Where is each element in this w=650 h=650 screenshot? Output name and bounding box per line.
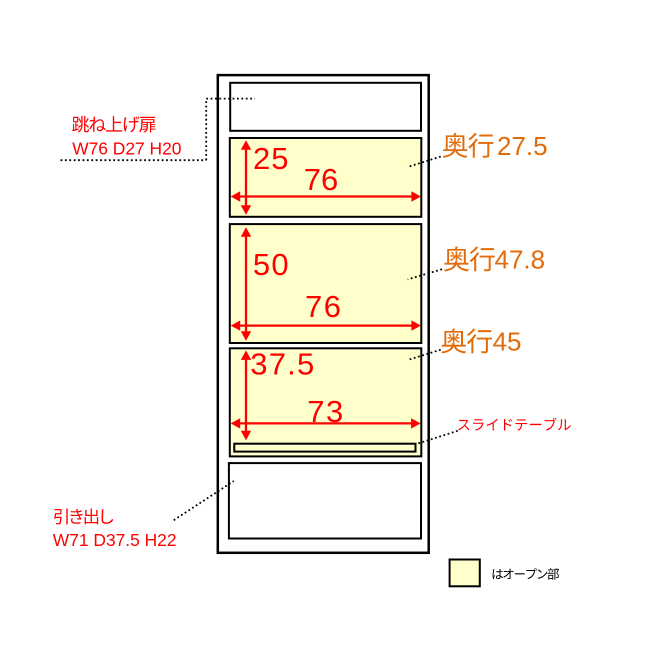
svg-text:W71 D37.5 H22: W71 D37.5 H22 — [53, 530, 177, 550]
svg-text:50: 50 — [253, 247, 290, 282]
svg-text:W76 D27 H20: W76 D27 H20 — [72, 139, 181, 159]
svg-text:27.5: 27.5 — [497, 131, 548, 161]
svg-text:25: 25 — [253, 141, 289, 176]
svg-text:73: 73 — [307, 394, 344, 429]
svg-text:45: 45 — [493, 327, 522, 357]
svg-text:76: 76 — [305, 289, 342, 324]
svg-text:47.8: 47.8 — [495, 245, 546, 275]
svg-text:37.5: 37.5 — [250, 347, 315, 382]
svg-text:76: 76 — [304, 162, 338, 197]
